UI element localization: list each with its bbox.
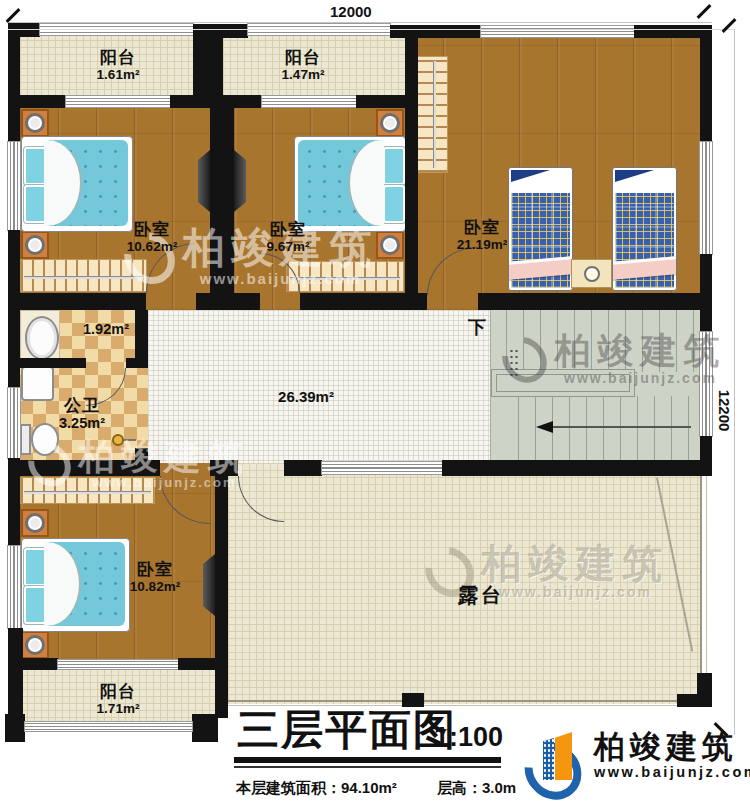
room-label-balcony-bottom: 阳台 1.71m² [97,682,140,717]
wall [20,95,66,108]
door-handle-icon [112,434,124,446]
nightstand [21,109,49,137]
wardrobe [286,261,404,292]
plan-meta: 本层建筑面积：94.10m² 层高：3.0m [236,779,516,798]
wall [196,293,260,310]
toilet-tank [20,424,31,455]
title-underline [234,757,501,763]
window [262,96,356,107]
wall [478,293,712,310]
lamp-icon [25,235,45,255]
pillow [24,185,46,223]
room-label-bedroom-bottom-left: 卧室 10.82m² [130,560,180,595]
door-handle-line [124,439,136,441]
nightstand [376,109,404,137]
nightstand [376,231,404,259]
wardrobe [20,477,155,504]
wall [5,714,25,742]
window [66,96,170,107]
single-bed [508,167,573,291]
brand-logo: 柏竣建筑 www.baijunjz.com [528,731,750,793]
wall [700,25,712,142]
wall [405,25,418,310]
floor-height-text: 层高：3.0m [437,779,516,798]
window [8,388,20,458]
baijun-logo-icon [528,731,584,793]
wall [126,358,148,368]
stair-direction-arrow-icon [536,421,553,433]
room-label-bedroom-top-mid: 卧室 9.67m² [267,220,310,255]
nightstand [571,259,612,288]
wall [210,460,238,476]
pillow [24,586,46,624]
wall [442,460,712,476]
wall [677,694,712,707]
wardrobe-rail [433,61,436,168]
stair-treads-upper [506,310,694,372]
pillow [24,548,46,586]
lamp-icon [25,513,45,533]
wardrobe [417,56,448,173]
room-label-hall: 26.39m² [278,388,334,405]
single-bed [612,167,677,291]
double-bed [294,136,406,232]
wall [20,358,86,368]
wardrobe-rail [290,277,400,280]
room-label-bedroom-right: 卧室 21.19m² [457,218,507,253]
terrace-parapet-bottom [228,700,680,702]
floor-plan-page: { "dimensions": { "top": "12000", "right… [0,0,750,803]
wardrobe [20,259,147,292]
window [8,546,20,628]
lamp-icon [584,266,600,282]
blanket-fold [511,170,550,182]
tv [203,554,215,616]
balcony-railing-window [25,722,192,731]
wardrobe-rail [24,491,151,494]
window [700,142,712,254]
pillow [383,147,405,185]
wall [178,658,228,670]
lamp-icon [380,235,400,255]
dimension-right-value: 12200 [716,381,733,441]
floor-area-text: 本层建筑面积：94.10m² [236,779,397,798]
room-label-bedroom-top-left: 卧室 10.62m² [127,220,177,255]
window [700,332,712,436]
tv [234,150,246,212]
plan-title: 三层平面图 [237,709,457,751]
lamp-icon [25,113,45,133]
stair-direction-line [553,426,691,428]
stair-edge-line [490,310,491,463]
stairs-down-label: 下 [468,315,486,339]
brand-site: www.baijunjz.com [594,764,750,780]
wall [284,460,322,476]
wall [223,95,262,108]
wall [192,714,218,742]
nightstand [21,231,49,259]
plan-scale: 1:100 [434,722,503,753]
wall [193,24,223,97]
washing-machine [21,366,54,401]
wall [170,95,223,108]
room-label-balcony-top-mid: 阳台 1.47m² [282,48,325,83]
tv [198,150,210,212]
wardrobe-rail [24,276,143,279]
dimension-tick [6,8,21,23]
pillow [24,147,46,185]
wall [8,230,20,388]
stair-break-dots [509,348,519,378]
title-underline-thin [234,766,501,768]
wall [390,25,481,38]
wall [20,658,58,670]
wall [402,693,424,707]
pillow [383,185,405,223]
nightstand [21,631,49,659]
room-label-vanity: 1.92m² [83,321,129,337]
wall [20,293,146,310]
brand-name: 柏竣建筑 [594,731,750,764]
wall [215,476,228,718]
lamp-icon [25,635,45,655]
wall [135,310,148,360]
wall [700,254,712,332]
room-label-balcony-top-left: 阳台 1.61m² [97,48,140,83]
wall [210,108,234,295]
dimension-line-top-2 [8,29,734,30]
lamp-icon [380,113,400,133]
window [481,26,634,37]
window [58,660,178,669]
terrace-parapet-right-inner [706,476,707,675]
toilet [31,423,59,456]
dimension-tick [697,4,712,19]
dimension-top-value: 12000 [330,3,372,20]
double-bed [21,136,133,232]
room-label-terrace: 露台 [458,582,504,609]
wall [300,293,427,310]
dimension-line-right [734,29,735,735]
sink [25,316,59,360]
window [8,142,20,230]
floor-hall [148,310,490,463]
terrace-parapet-right [700,476,702,675]
wall [8,23,20,142]
window [322,462,442,474]
nightstand [21,509,49,537]
dimension-line-top [8,22,712,23]
room-label-bathroom: 公卫 3.25m² [59,396,105,432]
blanket-fold [615,170,654,182]
double-bed [21,538,130,632]
wall [8,460,160,476]
